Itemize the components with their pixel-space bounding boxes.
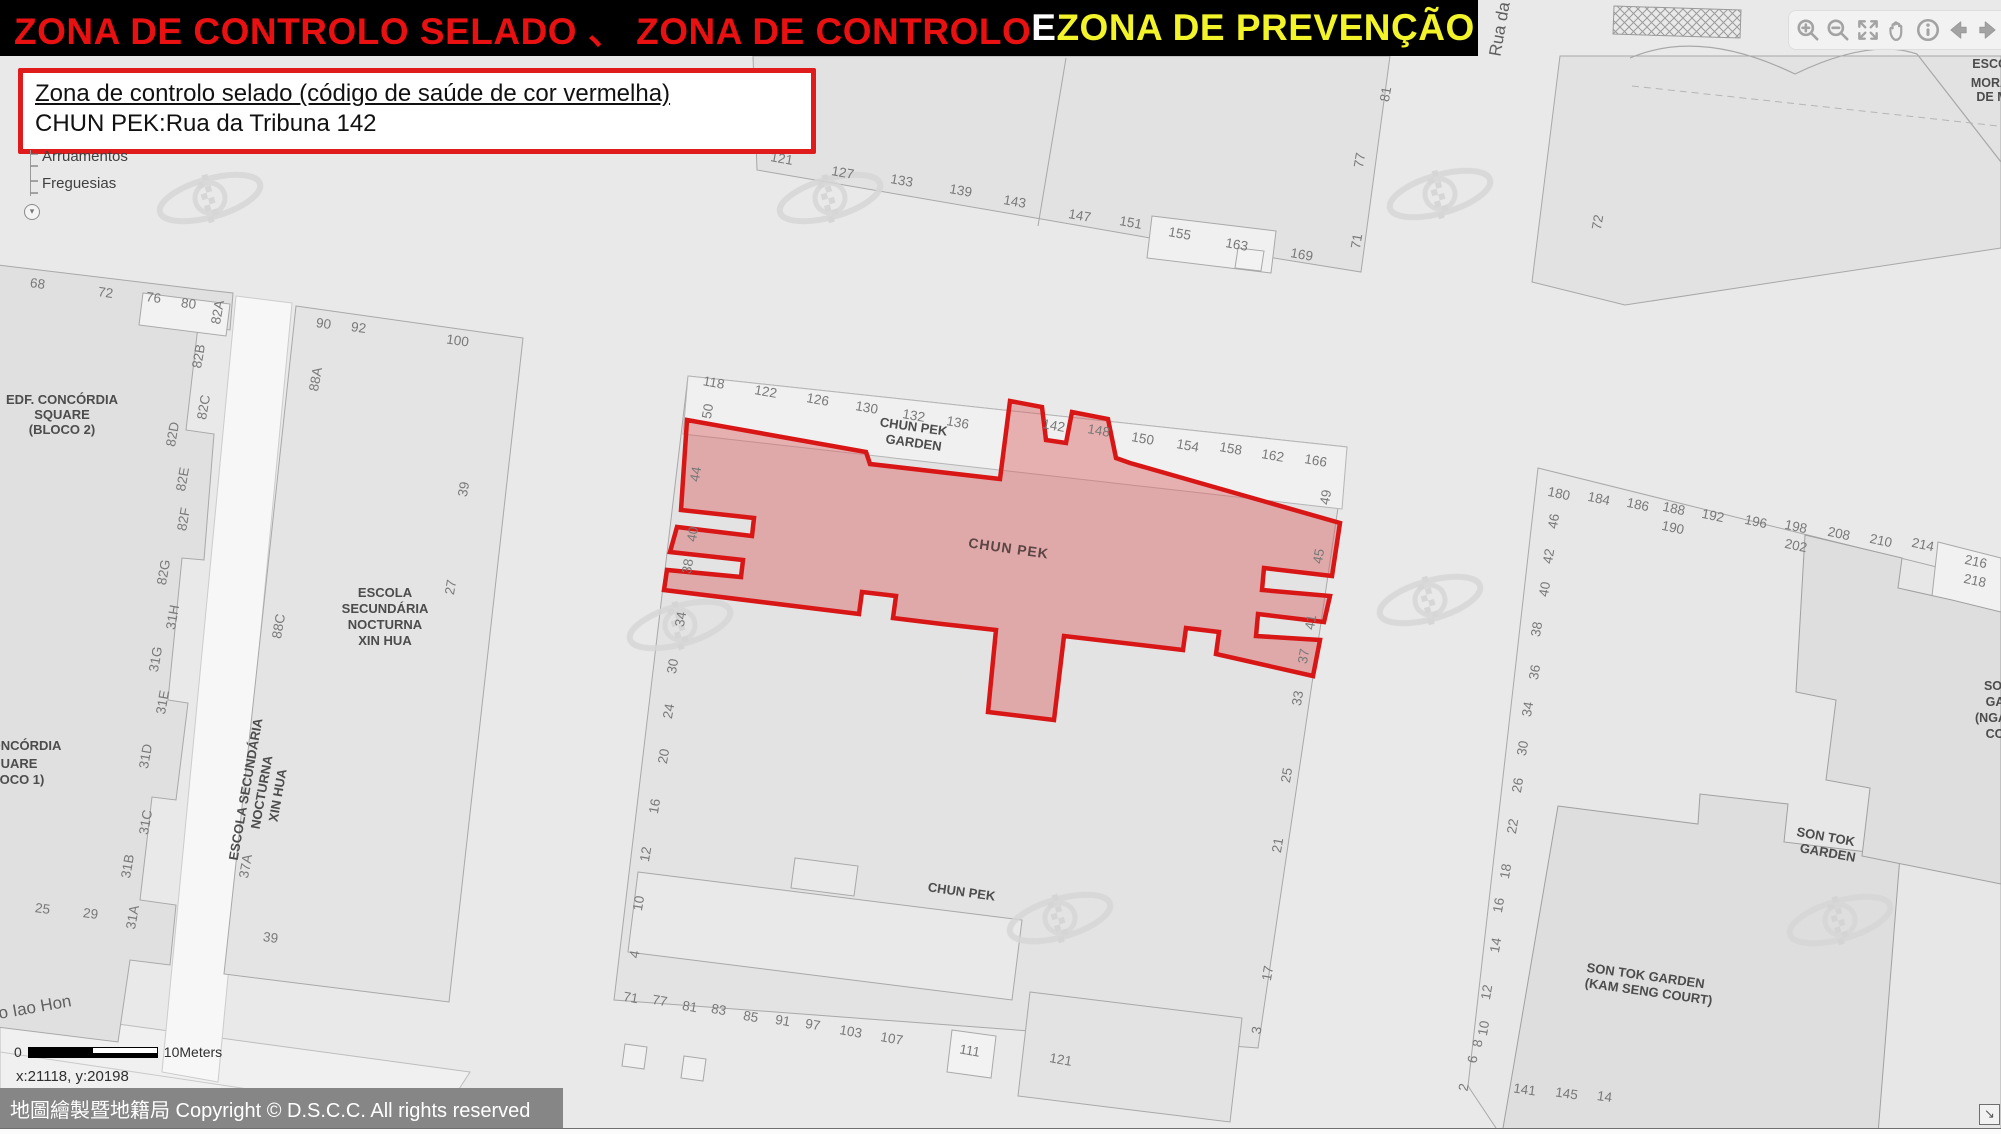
map-label: 34 bbox=[672, 610, 689, 628]
map-label: 103 bbox=[838, 1022, 863, 1041]
map-label: Rua da bbox=[1485, 0, 1513, 58]
map-label: 85 bbox=[742, 1008, 759, 1025]
map-label: ESCOLA bbox=[358, 585, 413, 600]
map-label: 16 bbox=[1490, 897, 1507, 914]
map-label: 30 bbox=[664, 658, 681, 675]
map-label: 16 bbox=[646, 798, 663, 815]
map-toolbar bbox=[1788, 10, 2001, 50]
scale-label: 10Meters bbox=[164, 1044, 222, 1060]
map-label: 71 bbox=[622, 989, 639, 1006]
next-extent-button[interactable] bbox=[1973, 15, 2001, 45]
identify-button[interactable] bbox=[1913, 15, 1943, 45]
title-part-e: E bbox=[1031, 7, 1056, 49]
map-label: 100 bbox=[445, 332, 469, 350]
pan-button[interactable] bbox=[1883, 15, 1913, 45]
tree-expander-icon[interactable]: ▾ bbox=[24, 204, 40, 220]
map-label: 39 bbox=[455, 481, 472, 498]
layer-item-arruamentos[interactable]: Arruamentos bbox=[26, 148, 128, 175]
map-label: 46 bbox=[1545, 513, 1562, 530]
map-label: 3 bbox=[1249, 1025, 1265, 1035]
map-label: QUARE bbox=[0, 756, 38, 771]
map-label: 83 bbox=[710, 1001, 727, 1018]
map-label: 40 bbox=[684, 526, 701, 543]
map-label: 145 bbox=[1554, 1085, 1578, 1103]
map-label: 50 bbox=[699, 403, 716, 420]
layer-tree: Arruamentos Freguesias ▾ bbox=[26, 148, 128, 218]
full-extent-button[interactable] bbox=[1853, 15, 1883, 45]
map-label: 72 bbox=[97, 284, 114, 301]
map-label: 49 bbox=[1317, 489, 1334, 506]
resize-handle-icon[interactable]: ↘ bbox=[1979, 1104, 2000, 1125]
map-label: CO bbox=[1986, 727, 2001, 741]
map-label: 40 bbox=[1536, 581, 1553, 598]
map-label: 27 bbox=[442, 579, 459, 596]
map-label: 71 bbox=[1348, 233, 1365, 250]
scale-bar-graphic bbox=[28, 1047, 158, 1058]
map-label: 25 bbox=[34, 900, 51, 917]
map-label: 12 bbox=[637, 846, 654, 863]
map-label: 141 bbox=[1512, 1081, 1536, 1099]
title-part-prevention: ZONA DE PREVENÇÃO bbox=[1056, 7, 1474, 49]
zoom-in-button[interactable] bbox=[1793, 15, 1823, 45]
map-label: 12 bbox=[1478, 984, 1495, 1001]
map-label: 14 bbox=[1596, 1088, 1613, 1105]
zoom-out-icon bbox=[1825, 17, 1851, 43]
map-canvas[interactable]: 12112713313914314715115516316981777172Ru… bbox=[0, 0, 2001, 1134]
map-label: GA bbox=[1986, 695, 2001, 709]
map-label: 18 bbox=[1497, 863, 1514, 880]
bottom-strip bbox=[0, 1128, 2001, 1134]
map-label: 72 bbox=[1589, 214, 1606, 231]
scale-zero: 0 bbox=[14, 1044, 22, 1060]
map-label: ESCO bbox=[1972, 57, 2001, 71]
dscc-watermark-logo bbox=[1373, 563, 1486, 638]
map-label: 210 bbox=[1868, 531, 1893, 550]
map-label: 31H bbox=[163, 604, 182, 631]
map-label: 80 bbox=[180, 295, 197, 312]
map-label: 36 bbox=[1526, 664, 1543, 681]
map-label: NOCTURNA bbox=[348, 617, 423, 632]
map-label: 34 bbox=[1519, 700, 1536, 718]
map-label: 17 bbox=[1259, 965, 1276, 982]
layer-item-label: Freguesias bbox=[42, 175, 116, 192]
copyright-bar: 地圖繪製暨地籍局 Copyright © D.S.C.C. All rights… bbox=[0, 1088, 563, 1128]
zoom-in-icon bbox=[1795, 17, 1821, 43]
map-label: 107 bbox=[879, 1029, 904, 1048]
map-label: 44 bbox=[687, 465, 704, 483]
map-label: (NGA bbox=[1975, 711, 2001, 725]
map-label: DE M bbox=[1976, 90, 2001, 104]
box-street-a bbox=[622, 1044, 647, 1069]
map-label: SECUNDÁRIA bbox=[342, 601, 429, 616]
box-street-b bbox=[681, 1056, 706, 1081]
map-label: SQUARE bbox=[34, 407, 90, 422]
map-label: (BLOCO 2) bbox=[29, 422, 95, 437]
scale-bar: 0 10Meters bbox=[14, 1044, 222, 1060]
map-label: 81 bbox=[681, 998, 698, 1015]
map-label: 10 bbox=[1475, 1020, 1492, 1037]
map-label: 214 bbox=[1910, 535, 1936, 554]
map-label: 90 bbox=[315, 315, 332, 332]
map-label: 76 bbox=[145, 289, 162, 306]
map-label: XIN HUA bbox=[358, 633, 412, 648]
title-bar: ZONA DE CONTROLO SELADO 、 ZONA DE CONTRO… bbox=[0, 0, 1478, 56]
hatch-area bbox=[1613, 6, 1741, 38]
map-label: 39 bbox=[262, 929, 279, 946]
map-label: 92 bbox=[350, 319, 367, 336]
map-label: 21 bbox=[1269, 837, 1286, 854]
map-label: SO bbox=[1984, 679, 2001, 693]
zone-info-heading: Zona de controlo selado (código de saúde… bbox=[35, 79, 797, 109]
map-label: 81 bbox=[1377, 86, 1394, 103]
layer-item-freguesias[interactable]: Freguesias bbox=[26, 175, 128, 202]
map-label: 30 bbox=[1514, 740, 1531, 757]
map-application: 12112713313914314715115516316981777172Ru… bbox=[0, 0, 2001, 1134]
zone-info-address: CHUN PEK:Rua da Tribuna 142 bbox=[35, 109, 797, 139]
map-label: 10 bbox=[630, 895, 647, 912]
map-label: 31C bbox=[136, 808, 155, 835]
zoom-out-button[interactable] bbox=[1823, 15, 1853, 45]
dscc-watermark-logo bbox=[1383, 157, 1496, 232]
map-label: 33 bbox=[1289, 690, 1306, 707]
map-label: 14 bbox=[1487, 936, 1504, 954]
copyright-text: 地圖繪製暨地籍局 Copyright © D.S.C.C. All rights… bbox=[10, 1094, 530, 1123]
map-label: 38 bbox=[679, 558, 696, 575]
map-label: EDF. CONCÓRDIA bbox=[6, 392, 119, 407]
pan-hand-icon bbox=[1885, 17, 1911, 43]
map-label: 26 bbox=[1509, 777, 1526, 794]
zone-info-box: Zona de controlo selado (código de saúde… bbox=[18, 68, 816, 154]
map-label: 22 bbox=[1504, 818, 1521, 835]
map-label: LOCO 1) bbox=[0, 772, 44, 787]
map-label: 45 bbox=[1310, 548, 1327, 565]
title-part-sealed: ZONA DE CONTROLO SELADO 、 ZONA DE CONTRO… bbox=[14, 1, 1031, 55]
map-label: ONCÓRDIA bbox=[0, 738, 62, 753]
map-label: 25 bbox=[1278, 767, 1295, 784]
map-label: 20 bbox=[655, 748, 672, 765]
map-label: 38 bbox=[1528, 621, 1545, 638]
map-label: 41 bbox=[1302, 614, 1319, 631]
info-icon bbox=[1915, 17, 1941, 43]
map-label: 77 bbox=[1351, 152, 1368, 169]
map-label: 37 bbox=[1295, 648, 1312, 665]
map-label: 82B bbox=[189, 343, 208, 369]
map-label: 97 bbox=[804, 1016, 821, 1033]
block-top-right bbox=[1532, 56, 2001, 305]
previous-extent-button[interactable] bbox=[1943, 15, 1973, 45]
map-label: 29 bbox=[82, 905, 99, 922]
cursor-coordinates: x:21118, y:20198 bbox=[16, 1068, 129, 1085]
map-label: 68 bbox=[29, 275, 46, 292]
block-top bbox=[753, 56, 1390, 272]
map-label: 91 bbox=[774, 1012, 791, 1029]
back-arrow-icon bbox=[1945, 17, 1971, 43]
forward-arrow-icon bbox=[1975, 17, 2001, 43]
map-label: 82C bbox=[194, 393, 213, 420]
map-label: MORA bbox=[1971, 76, 2001, 90]
map-label: 42 bbox=[1540, 548, 1557, 565]
dscc-watermark-logo bbox=[153, 161, 266, 236]
map-label: 24 bbox=[660, 702, 677, 720]
full-extent-icon bbox=[1855, 17, 1881, 43]
layer-item-label: Arruamentos bbox=[42, 148, 128, 165]
map-label: 77 bbox=[651, 992, 668, 1009]
